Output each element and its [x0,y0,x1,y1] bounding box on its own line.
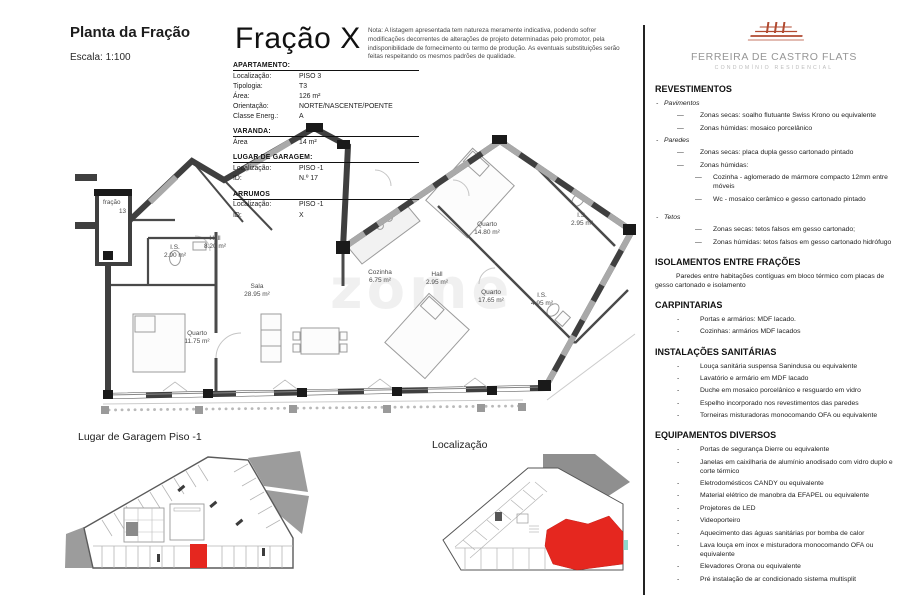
wall-cap [94,189,132,196]
wall-stub [75,174,97,181]
garage-plan [62,448,317,588]
fraction-location-highlight [545,516,623,570]
core-block [124,504,204,542]
brand-name: FERREIRA DE CASTRO FLATS [655,51,893,63]
room-label-quarto2: Quarto14.80 m² [474,221,500,236]
table-title: LUGAR DE GARAGEM: [233,154,419,163]
table-rows: Área14 m² [233,137,419,147]
spec-item: —Zonas secas: tetos falsos em gesso cart… [655,225,893,234]
spec-item: -Portas e armários: MDF lacado. [655,315,893,324]
spec-item: -Portas de segurança Dierre ou equivalen… [655,445,893,454]
spec-item: -Tetos [655,213,893,222]
spec-item: -Janelas em caixilharia de alumínio anod… [655,458,893,476]
section-heading: INSTALAÇÕES SANITÁRIAS [655,347,893,357]
spec-item: -Espelho incorporado nos revestimentos d… [655,399,893,408]
spec-item: -Eletrodomésticos CANDY ou equivalente [655,479,893,488]
brand-block: FERREIRA DE CASTRO FLATS CONDOMÍNIO RESI… [655,18,893,71]
disclaimer-note: Nota: A listagem apresentada tem naturez… [368,27,633,62]
table-rows: Localização:PISO -1ID:X [233,200,419,220]
spec-item: —Zonas húmidas: tetos falsos em gesso ca… [655,238,893,247]
table-row: Classe Energ.:A [233,111,419,121]
spec-item: -Duche em mosaico porcelânico e resguard… [655,386,893,395]
section-items: -Pavimentos—Zonas secas: soalho flutuant… [655,99,893,247]
spec-item: -Paredes entre habitações contíguas em b… [655,272,893,290]
section-instalacoes-sanitarias: INSTALAÇÕES SANITÁRIAS -Louça sanitária … [655,347,893,421]
spec-item: -Aquecimento das águas sanitárias por bo… [655,529,893,538]
spec-item: -Material elétrico de manobra da EFAPEL … [655,491,893,500]
section-carpintarias: CARPINTARIAS -Portas e armários: MDF lac… [655,300,893,337]
table-rows: Localização:PISO 3Tipologia:T3Área:126 m… [233,71,419,121]
section-heading: CARPINTARIAS [655,300,893,310]
table-row: Localização:PISO -1 [233,200,419,210]
scale-label: Escala: 1:100 [70,52,131,63]
section-revestimentos: REVESTIMENTOS -Pavimentos—Zonas secas: s… [655,84,893,247]
spec-sidebar: FERREIRA DE CASTRO FLATS CONDOMÍNIO RESI… [655,18,893,587]
spec-item: —Wc - mosaico cerâmico e gesso cartonado… [655,195,893,204]
table-title: ARRUMOS [233,191,419,200]
spec-item: —Zonas húmidas: mosaico porcelânico [655,124,893,133]
spec-item: -Projetores de LED [655,504,893,513]
fraction-title: Fração X [235,22,361,56]
garage-spot-highlight [190,544,207,568]
spec-item: —Cozinha - aglomerado de mármore compact… [655,173,893,191]
table-row: ID:X [233,210,419,220]
table-row: Área14 m² [233,137,419,147]
spec-item: -Lavatório e armário em MDF lacado [655,374,893,383]
section-isolamentos: ISOLAMENTOS ENTRE FRAÇÕES -Paredes entre… [655,257,893,290]
spec-item: -Cozinhas: armários MDF lacados [655,327,893,336]
spec-item: —Zonas húmidas: [655,161,893,170]
section-items: -Louça sanitária suspensa Sanindusa ou e… [655,362,893,421]
room-label-quarto3: Quarto17.65 m² [478,289,504,304]
plan-sheet: Planta da Fração Escala: 1:100 Fração X … [0,0,900,597]
location-plan-title: Localização [432,439,487,451]
spec-item: -Pré instalação de ar condicionado siste… [655,575,893,584]
section-items: -Portas e armários: MDF lacado.-Cozinhas… [655,315,893,337]
spec-item: —Zonas secas: placa dupla gesso cartonad… [655,148,893,157]
spec-item: -Paredes [655,136,893,145]
room-label-quarto1: Quarto11.75 m² [184,330,210,345]
location-plan [425,452,650,590]
room-label-cozinha: Cozinha6.75 m² [368,269,392,284]
spec-item: -Torneiras misturadoras monocomando OFA … [655,411,893,420]
spec-item: -Lava louça em inox e misturadora monoco… [655,541,893,559]
table-row: Localização:PISO 3 [233,71,419,81]
section-heading: REVESTIMENTOS [655,84,893,94]
spec-item: -Elevadores Orona ou equivalente [655,562,893,571]
page-title: Planta da Fração [70,24,190,41]
spec-item: —Zonas secas: soalho flutuante Swiss Kro… [655,111,893,120]
spec-item: -Louça sanitária suspensa Sanindusa ou e… [655,362,893,371]
section-items: -Paredes entre habitações contíguas em b… [655,272,893,290]
brand-logo-icon [739,18,809,44]
detail-accent [624,540,628,550]
spec-item: -Videoporteiro [655,516,893,525]
table-rows: Localização:PISO -1ID:N.º 17 [233,163,419,183]
section-heading: ISOLAMENTOS ENTRE FRAÇÕES [655,257,893,267]
table-row: Tipologia:T3 [233,81,419,91]
table-row: Orientação:NORTE/NASCENTE/POENTE [233,101,419,111]
brand-subtitle: CONDOMÍNIO RESIDENCIAL [655,65,893,71]
table-title: VARANDA: [233,128,419,137]
table-row: ID:N.º 17 [233,174,419,184]
info-tables: APARTAMENTO: Localização:PISO 3Tipologia… [233,62,419,227]
table-varanda: VARANDA: Área14 m² [233,128,419,147]
section-items: -Portas de segurança Dierre ou equivalen… [655,445,893,584]
vertical-divider [643,25,645,595]
section-equipamentos-diversos: EQUIPAMENTOS DIVERSOS -Portas de seguran… [655,430,893,584]
garage-plan-title: Lugar de Garagem Piso -1 [78,431,202,443]
table-row: Área:126 m² [233,91,419,101]
wall-stub [75,222,95,229]
table-arrumos: ARRUMOS Localização:PISO -1ID:X [233,191,419,220]
table-apartamento: APARTAMENTO: Localização:PISO 3Tipologia… [233,62,419,121]
section-heading: EQUIPAMENTOS DIVERSOS [655,430,893,440]
table-title: APARTAMENTO: [233,62,419,71]
table-garagem: LUGAR DE GARAGEM: Localização:PISO -1ID:… [233,154,419,183]
spec-item: -Pavimentos [655,99,893,108]
table-row: Localização:PISO -1 [233,163,419,173]
